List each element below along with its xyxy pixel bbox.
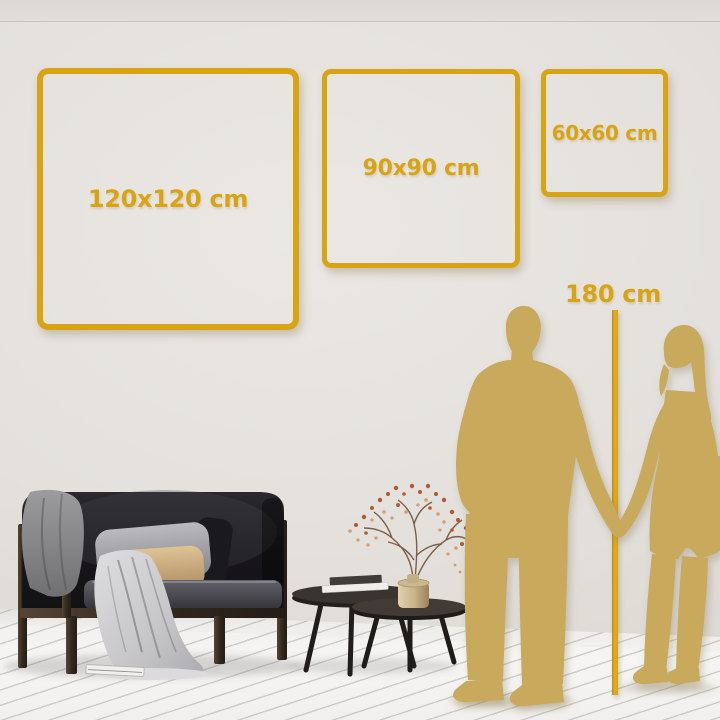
size-guide-scene: 120x120 cm 90x90 cm 60x60 cm 180 cm bbox=[0, 0, 720, 720]
woman-skirt bbox=[649, 456, 720, 559]
woman-silhouette bbox=[615, 325, 720, 684]
woman-right-leg bbox=[676, 556, 708, 670]
man-left-foot bbox=[453, 680, 504, 702]
woman-right-foot bbox=[667, 668, 700, 684]
woman-left-leg bbox=[644, 554, 676, 670]
man-right-leg bbox=[518, 514, 568, 686]
man-right-foot bbox=[510, 683, 564, 706]
woman-left-foot bbox=[633, 666, 668, 684]
man-silhouette bbox=[453, 306, 624, 706]
man-torso bbox=[463, 349, 582, 516]
man-head bbox=[506, 306, 541, 353]
couple-silhouette bbox=[0, 0, 720, 720]
man-left-leg bbox=[465, 514, 510, 682]
